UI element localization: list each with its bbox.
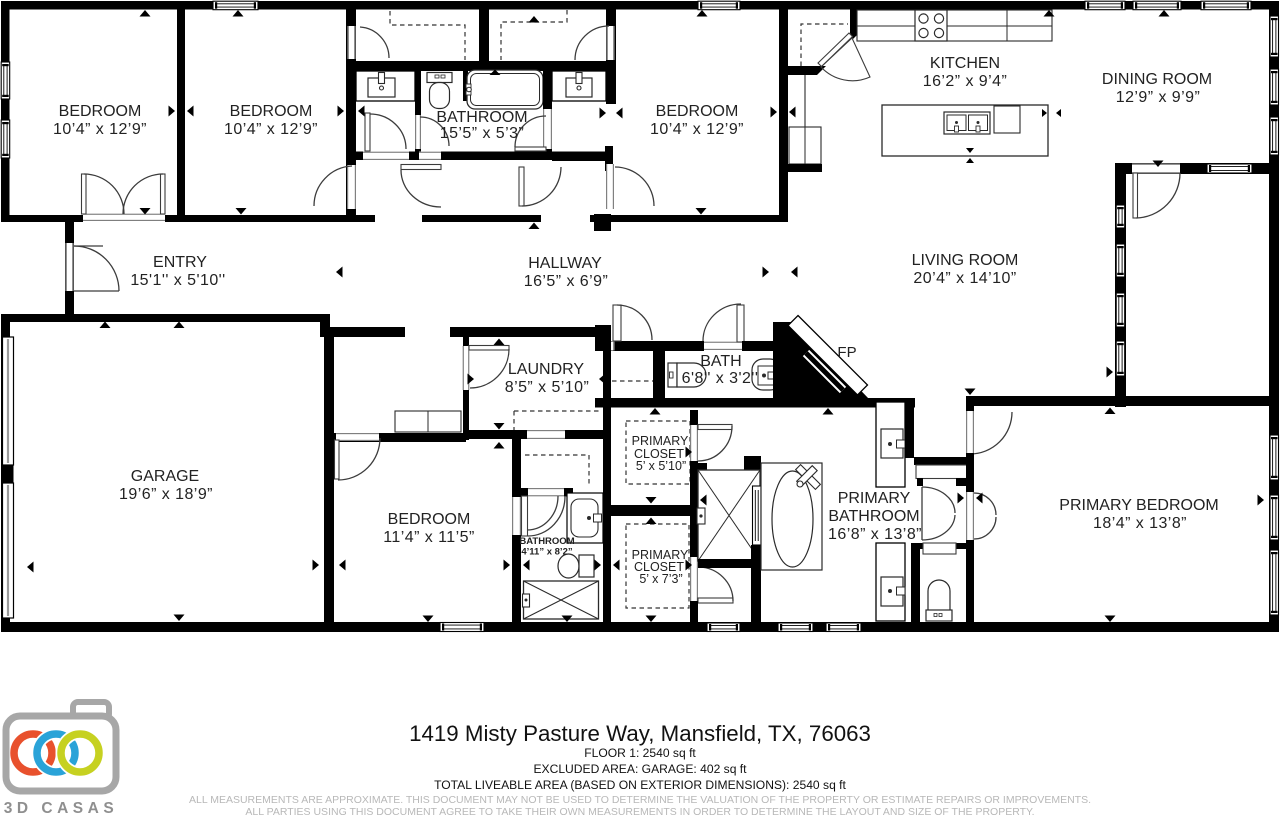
svg-text:20’4” x 14’10”: 20’4” x 14’10” <box>913 270 1016 287</box>
svg-text:18’4” x 13’8”: 18’4” x 13’8” <box>1093 515 1187 532</box>
svg-text:10’4” x 12’9”: 10’4” x 12’9” <box>650 121 744 138</box>
svg-text:11’4” x 11’5”: 11’4” x 11’5” <box>383 529 475 546</box>
svg-text:BATH: BATH <box>700 353 741 370</box>
svg-text:16’8” x 13’8”: 16’8” x 13’8” <box>828 526 922 543</box>
svg-text:5’ x 5’10”: 5’ x 5’10” <box>636 459 686 473</box>
svg-text:BEDROOM: BEDROOM <box>59 103 142 120</box>
svg-text:HALLWAY: HALLWAY <box>528 255 602 272</box>
svg-text:BATHROOM: BATHROOM <box>828 508 919 525</box>
svg-text:16’5” x 6’9”: 16’5” x 6’9” <box>524 273 609 290</box>
svg-text:LIVING ROOM: LIVING ROOM <box>912 252 1019 269</box>
svg-text:EXCLUDED AREA: GARAGE: 402 sq: EXCLUDED AREA: GARAGE: 402 sq ft <box>533 762 747 776</box>
svg-text:DINING ROOM: DINING ROOM <box>1102 71 1212 88</box>
svg-text:19’6” x 18’9”: 19’6” x 18’9” <box>119 486 213 503</box>
svg-text:12’9” x 9’9”: 12’9” x 9’9” <box>1116 89 1201 106</box>
svg-text:KITCHEN: KITCHEN <box>930 55 1000 72</box>
svg-text:PRIMARY: PRIMARY <box>632 434 689 448</box>
svg-text:10’4” x 12’9”: 10’4” x 12’9” <box>53 121 147 138</box>
svg-text:PRIMARY BEDROOM: PRIMARY BEDROOM <box>1059 497 1218 514</box>
svg-text:BEDROOM: BEDROOM <box>656 103 739 120</box>
svg-text:ALL MEASUREMENTS ARE APPROXIMA: ALL MEASUREMENTS ARE APPROXIMATE. THIS D… <box>189 794 1091 806</box>
svg-text:ENTRY: ENTRY <box>153 254 207 271</box>
svg-text:FP: FP <box>837 344 856 361</box>
svg-text:1419 Misty Pasture Way, Mansfi: 1419 Misty Pasture Way, Mansfield, TX, 7… <box>409 721 871 746</box>
svg-text:15'1'' x 5'10'': 15'1'' x 5'10'' <box>130 272 225 289</box>
svg-text:GARAGE: GARAGE <box>131 468 199 485</box>
svg-text:15’5” x 5’3”: 15’5” x 5’3” <box>440 125 525 142</box>
svg-text:FLOOR 1: 2540 sq ft: FLOOR 1: 2540 sq ft <box>584 746 696 760</box>
svg-text:BATHROOM: BATHROOM <box>436 109 527 126</box>
svg-text:ALL PARTIES USING THIS DOCUMEN: ALL PARTIES USING THIS DOCUMENT AGREE TO… <box>245 806 1034 818</box>
svg-text:LAUNDRY: LAUNDRY <box>508 361 585 378</box>
svg-text:BEDROOM: BEDROOM <box>388 511 471 528</box>
svg-text:10’4” x 12’9”: 10’4” x 12’9” <box>224 121 318 138</box>
svg-text:TOTAL LIVEABLE AREA (BASED ON: TOTAL LIVEABLE AREA (BASED ON EXTERIOR D… <box>434 778 846 792</box>
svg-text:5’ x 7’3”: 5’ x 7’3” <box>639 572 682 586</box>
svg-text:BEDROOM: BEDROOM <box>230 103 313 120</box>
svg-text:3D CASAS: 3D CASAS <box>4 800 118 817</box>
svg-text:BATHROOM: BATHROOM <box>519 536 574 547</box>
svg-text:16’2” x 9’4”: 16’2” x 9’4” <box>923 73 1008 90</box>
svg-text:PRIMARY: PRIMARY <box>838 490 911 507</box>
svg-text:8’5” x 5’10”: 8’5” x 5’10” <box>505 379 590 396</box>
svg-text:4’11” x 8’2”: 4’11” x 8’2” <box>521 547 572 558</box>
svg-text:6'8'' x 3'2'': 6'8'' x 3'2'' <box>682 370 759 387</box>
